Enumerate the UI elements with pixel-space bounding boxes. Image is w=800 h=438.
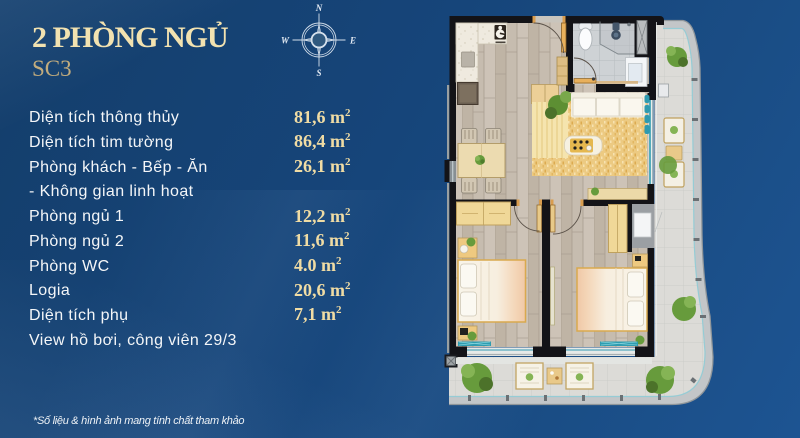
svg-text:S: S bbox=[316, 68, 321, 78]
svg-text:E: E bbox=[349, 36, 356, 46]
svg-text:W: W bbox=[281, 36, 290, 46]
svg-text:N: N bbox=[315, 3, 323, 13]
